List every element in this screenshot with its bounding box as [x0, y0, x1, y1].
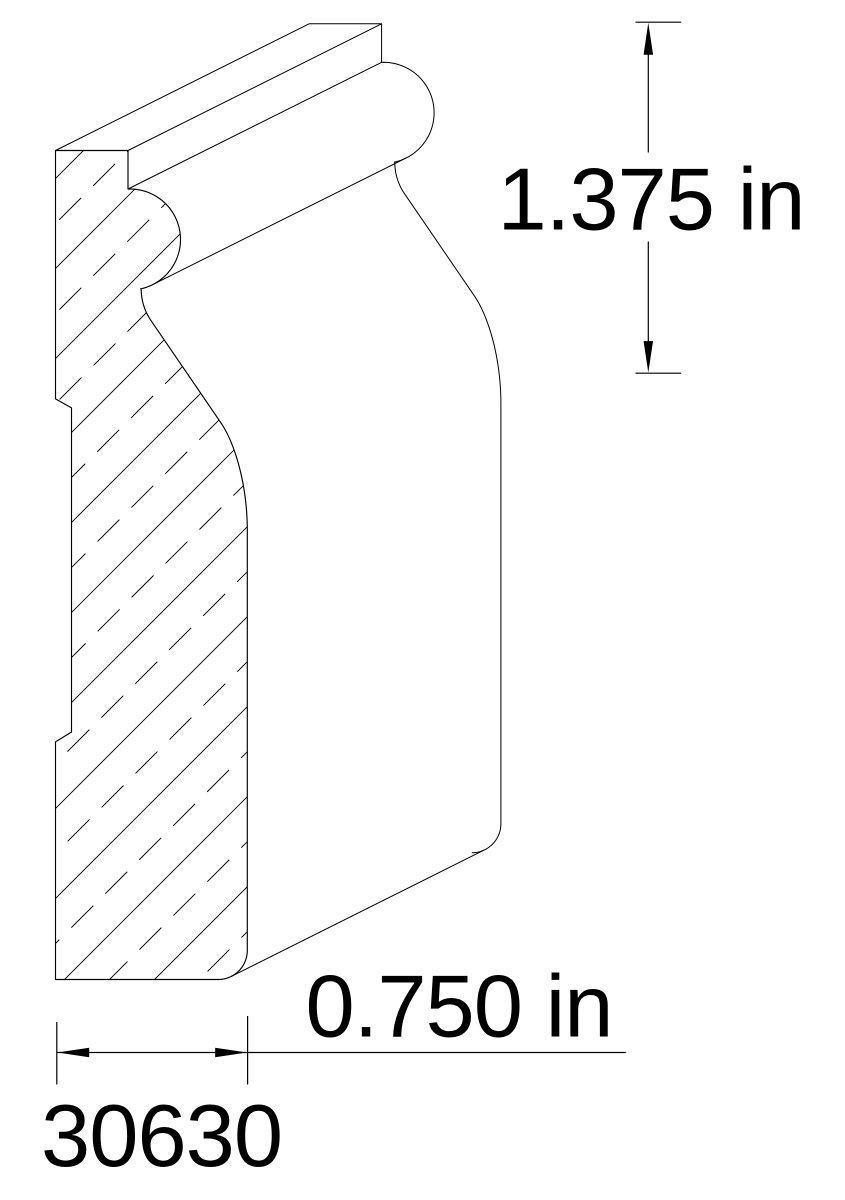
svg-text:0.750 in: 0.750 in [306, 957, 613, 1056]
svg-text:30630: 30630 [41, 1086, 282, 1185]
svg-text:1.375 in: 1.375 in [498, 150, 805, 249]
